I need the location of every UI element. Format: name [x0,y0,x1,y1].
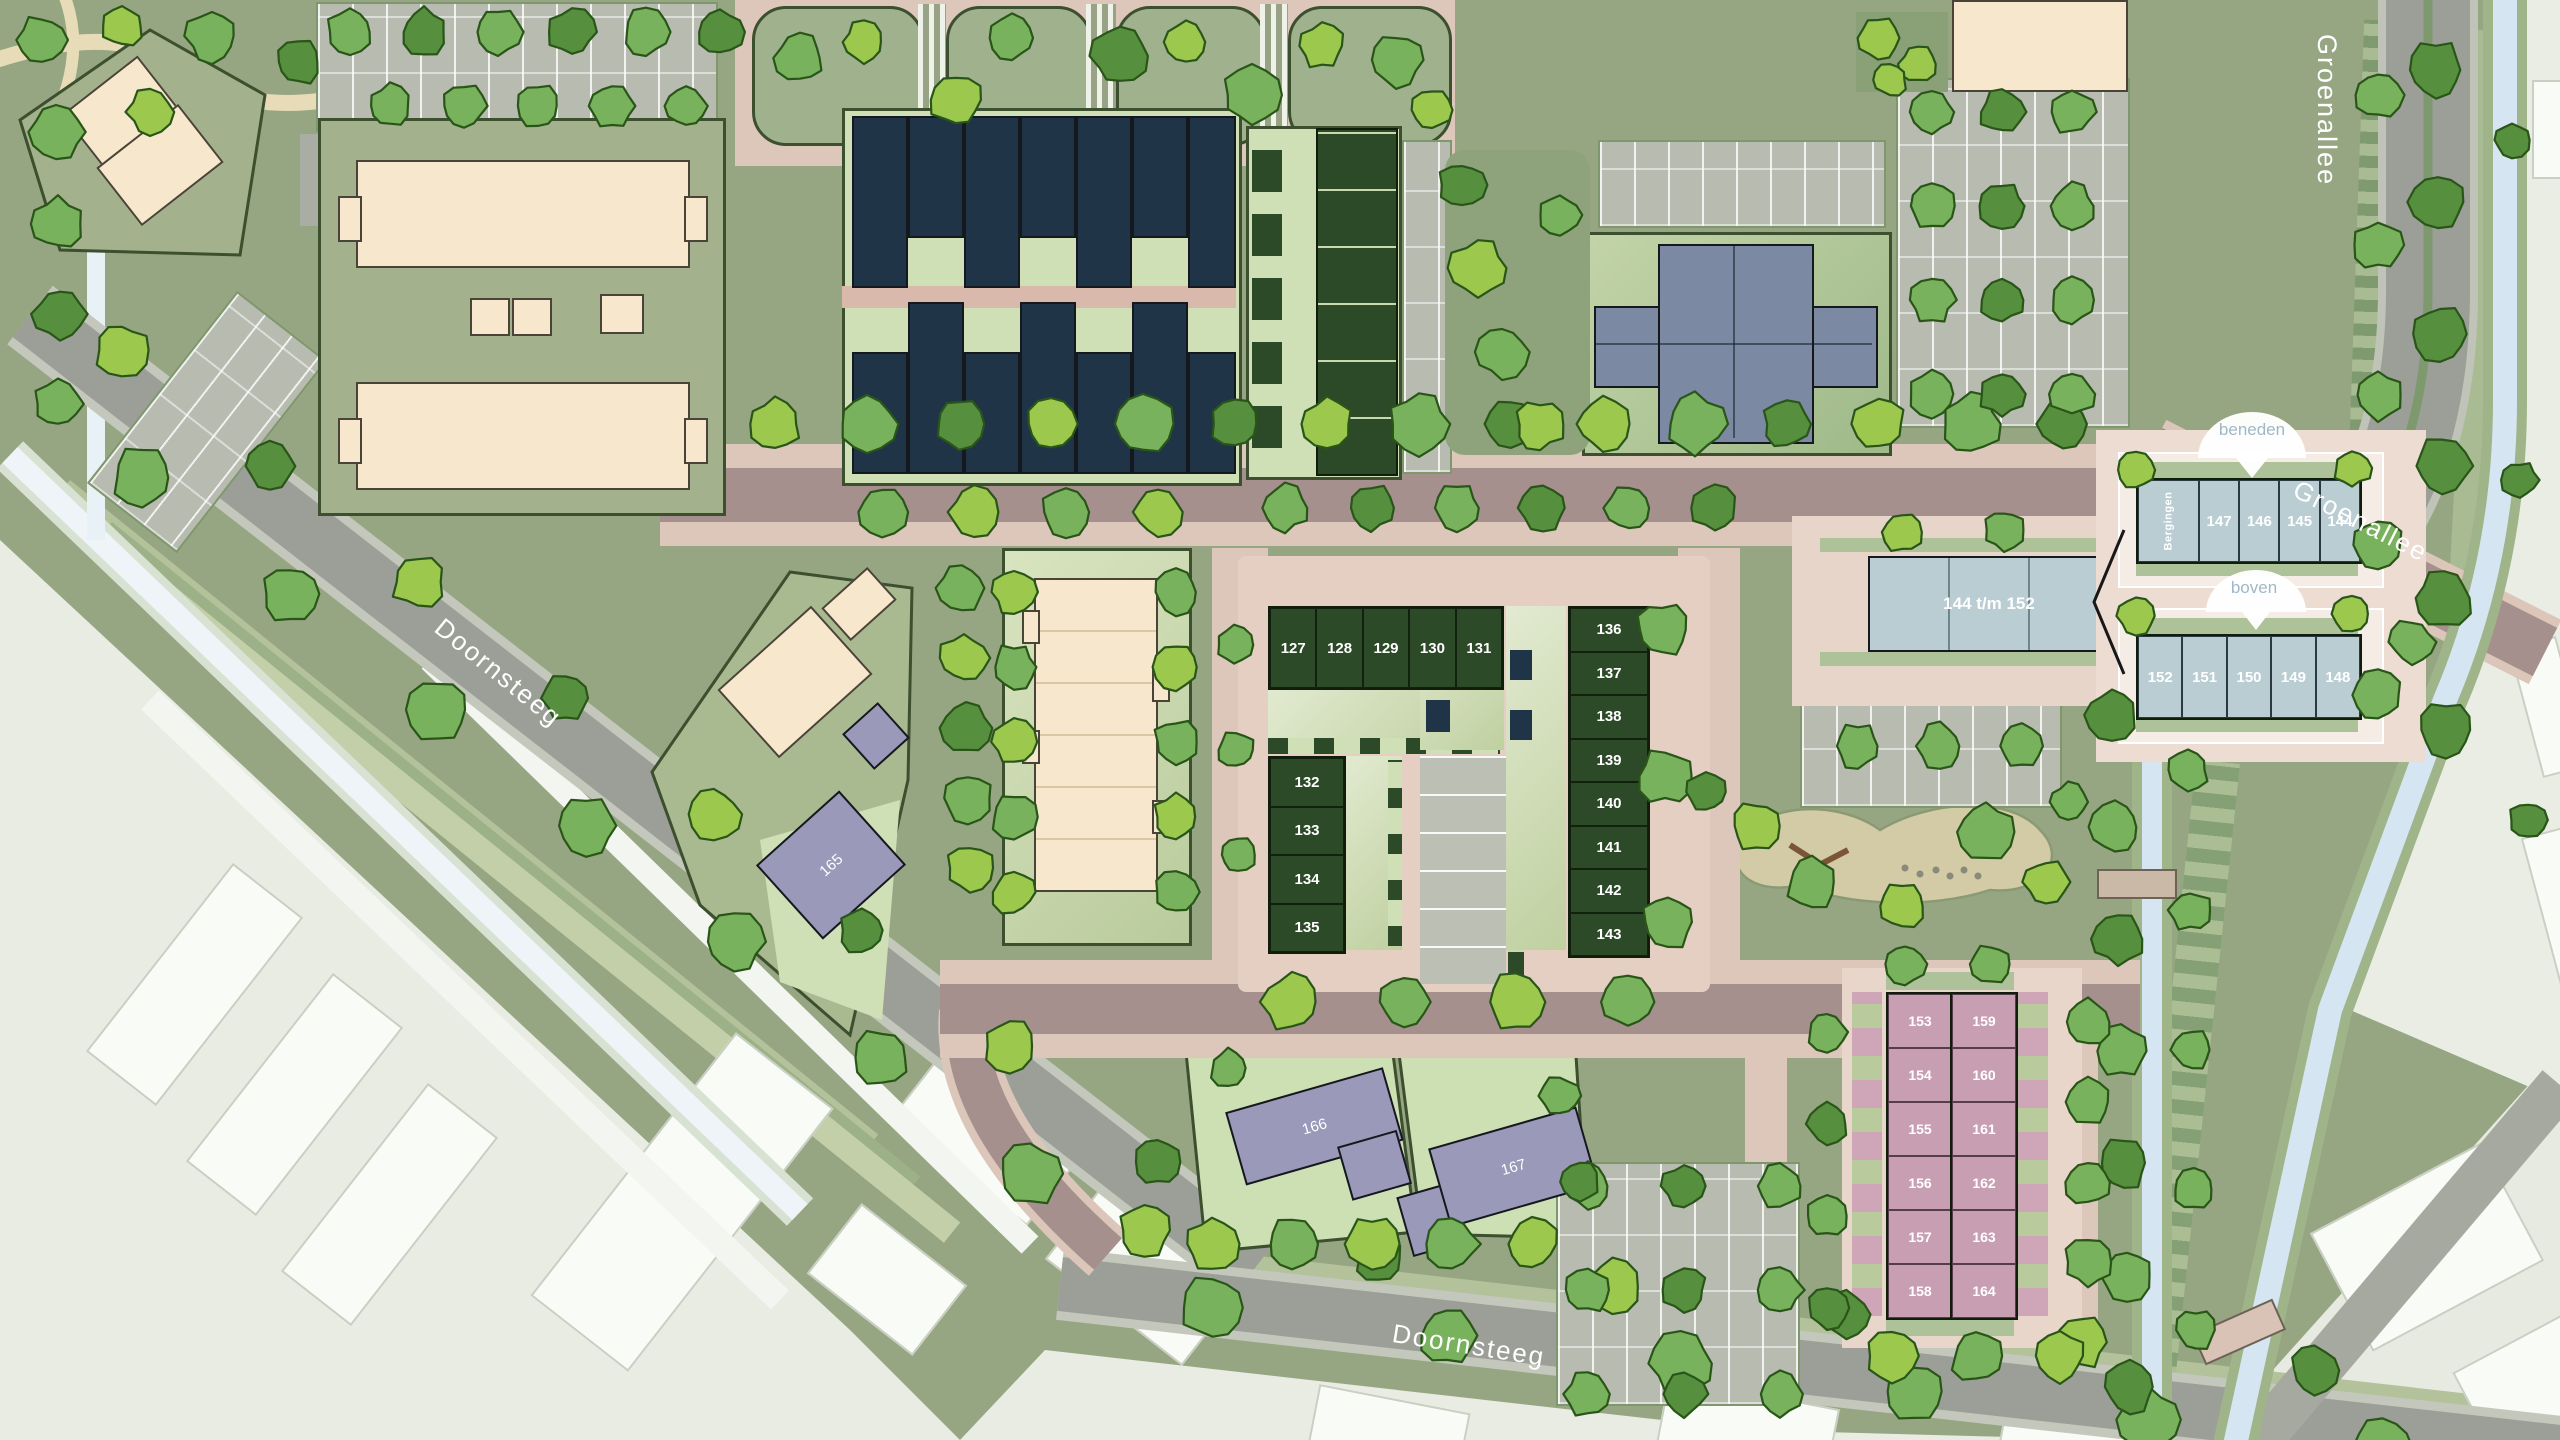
plot-unit: 129 [1363,608,1409,688]
garden-shed [1252,406,1282,448]
plot-unit: 153 [1888,994,1952,1048]
townhouse-navy [908,116,964,238]
house-166-label: 166 [1300,1115,1329,1138]
plot-unit: 130 [1409,608,1455,688]
house-165-label: 165 [816,850,846,879]
plot-unit: 138 [1570,695,1648,739]
plot-unit: 136 [1570,608,1648,652]
townhouse-navy [852,116,908,288]
plot-unit: 149 [2271,636,2315,718]
cross-divider [1733,246,1735,438]
garden-sheds [1388,760,1402,946]
garden-shed [1252,150,1282,192]
townhouse-navy [1188,352,1236,474]
plot-unit: 147 [2199,480,2239,562]
house-165: 165 [756,790,906,939]
park-panel [1288,6,1452,146]
pocket-park [1445,150,1590,455]
small-outbuilding [512,298,552,336]
plot-unit: 141 [1570,826,1648,870]
park-path-stripes [1260,4,1288,144]
parking-lot [1896,78,2130,428]
parking-lot [316,2,718,132]
plot-unit: 127 [1270,608,1316,688]
small-outbuilding [842,702,910,770]
green-strip [1886,972,2014,990]
townhouse-navy [1020,302,1076,474]
plot-unit: 133 [1270,807,1344,856]
townhouse-navy [1132,116,1188,238]
garden-shed-navy [1510,650,1532,680]
garden-shed-navy [1510,710,1532,740]
apartments-left-column: 153154155156157158 [1886,992,1954,1320]
plot-unit: 128 [1316,608,1362,688]
green-strip [2136,462,2358,478]
green-strip [1886,1318,2014,1336]
plot-col-136-143: 136137138139140141142143 [1568,606,1650,958]
plot-unit: 139 [1570,739,1648,783]
plot-unit: 160 [1952,1048,2016,1102]
parking-lot [87,291,327,553]
plot-col-132-135: 132133134135 [1268,756,1346,954]
street-label-doornsteeg-left: Doornsteeg [428,612,568,733]
plot-unit: 142 [1570,869,1648,913]
plot-unit: 155 [1888,1102,1952,1156]
plot-unit: 162 [1952,1156,2016,1210]
apartment-slab-building [1034,578,1158,892]
green-strip [1820,538,2106,552]
building-cream-north [1952,0,2128,92]
parking-lot [1598,140,1886,228]
slab-side-tab [1022,730,1040,764]
plot-unit: 132 [1270,758,1344,807]
plot-unit: 158 [1888,1264,1952,1318]
callout-boven: boven [2212,578,2296,598]
boven-units: 152151150149148 [2136,634,2362,720]
townhouse-navy [1188,116,1236,288]
green-strip [2136,618,2358,634]
apartment-slab-144-152: 144 t/m 152 [1868,556,2110,652]
plot-row-127-131: 127128129130131 [1268,606,1504,690]
green-strip [1820,652,2106,666]
townhouse-navy [852,352,908,474]
townhouse-navy [1076,116,1132,288]
small-outbuilding [338,418,362,464]
verge-strip [2124,760,2240,1440]
slab-label: 144 t/m 152 [1943,594,2035,614]
garden-strip [2018,992,2048,1316]
townhouse-navy [1132,302,1188,474]
plot-unit: 159 [1952,994,2016,1048]
garden-strip [1852,992,1882,1316]
townhouse-navy [908,302,964,474]
apartments-right-column: 159160161162163164 [1950,992,2018,1320]
small-outbuilding [684,418,708,464]
plot-unit: 164 [1952,1264,2016,1318]
garden-shed-navy [1426,700,1450,732]
plot-unit: 137 [1570,652,1648,696]
apartment-bar-building [356,160,690,268]
plot-unit: 152 [2138,636,2182,718]
slab-side-tab [1152,800,1170,834]
small-outbuilding [600,294,644,334]
plot-unit: 157 [1888,1210,1952,1264]
callout-beneden: beneden [2204,420,2300,440]
road-bridge [2193,1300,2285,1364]
existing-building [2532,80,2560,179]
garden-shed [1252,278,1282,320]
townhouse-navy [1020,116,1076,238]
plot-unit: 148 [2316,636,2360,718]
street-label-doornsteeg-bottom: Doornsteeg [1390,1318,1547,1373]
footbridge [2098,870,2176,898]
slab-side-tab [1022,610,1040,644]
plot-unit: 150 [2227,636,2271,718]
plot-unit: 146 [2239,480,2279,562]
garden-shed [1252,214,1282,256]
townhouse-darkgreen-row [1316,128,1398,476]
plot-unit: 161 [1952,1102,2016,1156]
plot-unit: 154 [1888,1048,1952,1102]
small-outbuilding [684,196,708,242]
existing-building [1045,1173,1249,1366]
plot-unit: 151 [2182,636,2226,718]
small-outbuilding [338,196,362,242]
plot-unit: 156 [1888,1156,1952,1210]
plot-unit: 131 [1456,608,1502,688]
garden-shed [1252,342,1282,384]
slab-side-tab [1152,668,1170,702]
house-167-label: 167 [1499,1155,1528,1178]
plot-unit: 143 [1570,913,1648,957]
plot-unit: 135 [1270,904,1344,953]
townhouse-navy [964,352,1020,474]
plot-unit: 163 [1952,1210,2016,1264]
plot-unit: 140 [1570,782,1648,826]
townhouse-navy [1076,352,1132,474]
apartment-bar-building [356,382,690,490]
street-label-groenallee-vertical: Groenallee [2311,34,2342,186]
parking-court [1420,756,1506,984]
plot-unit: Bergingen [2138,480,2199,562]
site-plan-map: 165 127128129130131 132133134135 1361371… [0,0,2560,1440]
small-outbuilding [470,298,510,336]
townhouse-navy [964,116,1020,288]
plot-unit: 134 [1270,855,1344,904]
green-square [1856,12,1948,92]
